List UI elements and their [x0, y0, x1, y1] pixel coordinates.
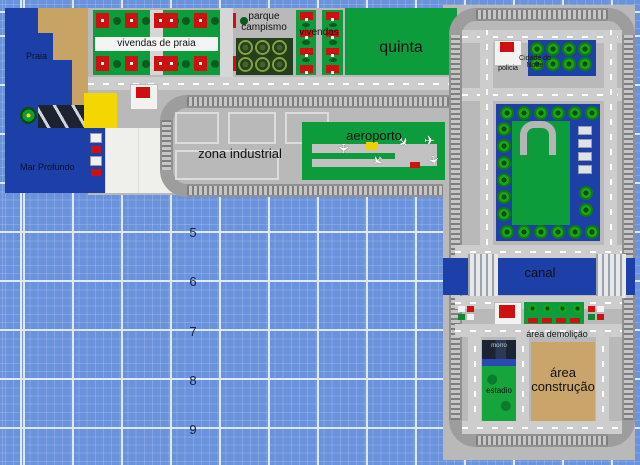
label-estadio: estadio	[482, 387, 516, 395]
tree-icon	[546, 42, 560, 56]
stall-a-icon	[458, 306, 465, 312]
rail-city-east	[622, 35, 635, 420]
stall-a-icon	[597, 306, 604, 312]
stall-c-icon	[588, 314, 595, 320]
grid-row-number: 6	[185, 274, 201, 289]
ring-icon	[272, 40, 287, 55]
tree-icon	[517, 225, 531, 239]
bush-icon	[113, 60, 121, 68]
house-icon	[300, 12, 313, 20]
label-parque-campismo: parque campismo	[233, 12, 295, 33]
house-icon	[125, 13, 138, 28]
tree-sm-icon	[543, 304, 552, 313]
park-u-path	[520, 121, 556, 155]
rail-city-west	[449, 35, 462, 420]
label-canal: canal	[500, 266, 580, 280]
park-trees-right	[579, 186, 593, 217]
boat-b-icon	[91, 169, 101, 176]
tree-icon	[497, 207, 511, 221]
tree-icon	[568, 225, 582, 239]
stalls-right	[588, 306, 606, 320]
row-numbers: 56789	[185, 0, 201, 465]
tree-icon	[530, 42, 544, 56]
house-icon	[125, 56, 138, 71]
house-icon	[300, 65, 313, 73]
stall-b-icon	[597, 314, 604, 320]
house-icon	[326, 48, 339, 56]
tree-icon	[551, 225, 565, 239]
tree-icon	[585, 225, 599, 239]
label-parque-line2: campismo	[241, 22, 287, 33]
island-buoy-icon	[20, 107, 37, 124]
tree-sm-icon	[558, 304, 567, 313]
canal-bridge-east	[596, 254, 626, 298]
boat-a-icon	[90, 133, 102, 143]
airplane-icon: ✈	[426, 154, 441, 167]
bush-icon	[142, 17, 150, 25]
tree-icon	[562, 57, 576, 71]
rail-industrial-north	[187, 95, 453, 108]
park-trees-left	[497, 122, 511, 221]
south-road-west-v	[468, 337, 481, 427]
vivendas-col-2	[322, 10, 343, 75]
house-icon	[96, 13, 109, 28]
airplane-icon: ✈	[337, 143, 350, 154]
south-road-lower	[462, 421, 622, 434]
boat-a-icon	[90, 156, 102, 166]
tree-icon	[517, 106, 531, 120]
tree-icon	[551, 106, 565, 120]
stall-b-icon	[467, 306, 474, 312]
bush-icon	[113, 17, 121, 25]
rail-industrial-west	[160, 120, 173, 172]
demolition-trees	[528, 304, 582, 313]
city-road-east	[604, 30, 617, 245]
parking-cars	[528, 318, 580, 323]
shed-icon	[578, 165, 592, 174]
bush-icon	[329, 40, 337, 44]
shed-icon	[578, 152, 592, 161]
bush-icon	[211, 17, 219, 25]
ring-icon	[238, 40, 253, 55]
label-aeroporto: aeroporto	[310, 129, 438, 143]
park-trees-top	[500, 106, 599, 120]
breakwater-rocks	[38, 105, 84, 128]
house-icon	[300, 48, 313, 56]
south-road-mid-v	[516, 337, 529, 427]
tree-icon	[585, 106, 599, 120]
label-construcao-line2: construção	[531, 379, 595, 394]
police-roof	[500, 42, 514, 52]
airplane-icon: ✈	[369, 152, 386, 169]
stalls-left	[458, 306, 476, 320]
grid-row-number: 5	[185, 225, 201, 240]
ring-icon	[272, 57, 287, 72]
campsite-rings	[236, 38, 293, 75]
house-icon	[326, 65, 339, 73]
city-road-west	[480, 30, 493, 245]
south-road-east-v	[596, 337, 609, 427]
tree-icon	[497, 122, 511, 136]
bush-icon	[302, 40, 310, 44]
car-icon	[570, 318, 580, 323]
rail-industrial-south	[187, 184, 443, 197]
stall-b-icon	[588, 306, 595, 312]
label-parque-line1: parque	[248, 11, 279, 22]
tree-icon	[578, 57, 592, 71]
tree-icon	[579, 203, 593, 217]
grid-row-number: 7	[185, 324, 201, 339]
canal-bridge-west	[468, 254, 498, 298]
rail-city-south	[476, 434, 608, 447]
park-zone	[496, 104, 600, 241]
label-mar-profundo: Mar Profundo	[20, 163, 75, 172]
tree-sm-icon	[528, 304, 537, 313]
tree-icon	[497, 139, 511, 153]
beach-sand-mid	[53, 33, 88, 60]
bush-icon	[329, 58, 337, 62]
label-vivendas: vivendas	[290, 28, 348, 39]
label-area-construcao: área construção	[525, 366, 601, 393]
tree-icon	[562, 42, 576, 56]
stall-c-icon	[458, 314, 465, 320]
tree-icon	[568, 106, 582, 120]
bush-icon	[302, 58, 310, 62]
vivendas-col-1	[296, 10, 316, 75]
label-praia: Praia	[26, 52, 47, 61]
tree-icon	[497, 173, 511, 187]
industrial-lot-2	[228, 112, 276, 144]
quay-seam	[138, 128, 139, 193]
tree-icon	[497, 156, 511, 170]
car-icon	[528, 318, 538, 323]
station-roof	[136, 87, 150, 98]
label-cidade-line1: Cidade do	[519, 55, 551, 62]
house-icon	[165, 56, 178, 71]
ring-icon	[255, 40, 270, 55]
tree-icon	[500, 225, 514, 239]
stadium-blue-strip	[482, 359, 516, 366]
tree-icon	[500, 106, 514, 120]
stall-a-icon	[467, 314, 474, 320]
house-icon	[326, 12, 339, 20]
shed-icon	[578, 139, 592, 148]
city-plan-map: Praia Mar Profundo vivendas de praia par…	[0, 0, 640, 465]
ring-icon	[255, 57, 270, 72]
car-icon	[542, 318, 552, 323]
tree-icon	[534, 106, 548, 120]
label-morro: morro	[484, 343, 514, 349]
house-icon	[96, 56, 109, 71]
label-cidade: Cidade do Norte	[508, 55, 562, 70]
house-icon	[165, 13, 178, 28]
tree-icon	[497, 190, 511, 204]
label-area-demolicao: área demolição	[518, 330, 596, 339]
tree-icon	[578, 42, 592, 56]
label-quinta: quinta	[345, 40, 457, 57]
market-roof	[499, 305, 515, 318]
bush-icon	[211, 60, 219, 68]
dock-boats	[88, 133, 104, 176]
tree-sm-icon	[573, 304, 582, 313]
rail-city-north	[476, 8, 608, 21]
bush-icon	[142, 60, 150, 68]
shed-icon	[578, 126, 592, 135]
campsite-west-road	[220, 8, 233, 77]
sea-step	[53, 60, 72, 103]
beach-sand-top	[38, 8, 88, 33]
ring-icon	[238, 57, 253, 72]
grid-row-number: 9	[185, 422, 201, 437]
label-cidade-line2: Norte	[526, 62, 543, 69]
park-trees-bottom	[500, 225, 599, 239]
car-icon	[556, 318, 566, 323]
tree-icon	[534, 225, 548, 239]
grid-row-number: 8	[185, 373, 201, 388]
park-structures	[578, 126, 592, 174]
boat-b-icon	[91, 146, 101, 153]
yellow-lot	[84, 93, 117, 128]
tree-icon	[579, 186, 593, 200]
